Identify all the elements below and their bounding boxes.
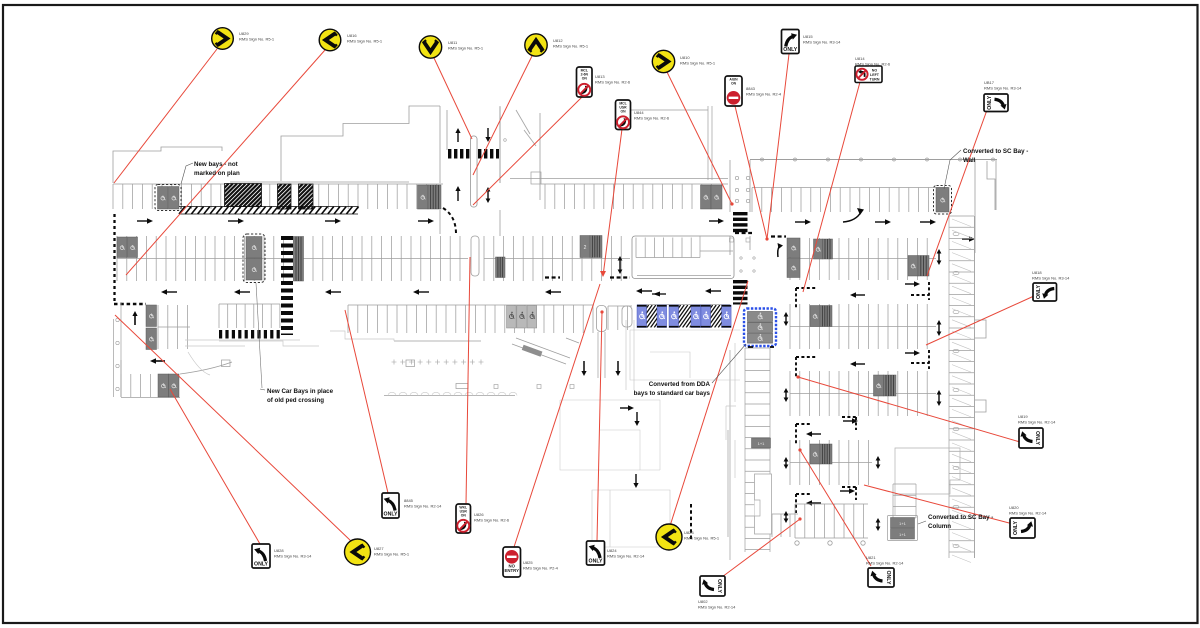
svg-text:U814: U814: [855, 56, 865, 61]
svg-text:RMS Sign No. R3-14: RMS Sign No. R3-14: [984, 85, 1022, 90]
svg-text:U816: U816: [347, 33, 357, 38]
svg-text:U826: U826: [474, 512, 484, 517]
svg-text:8845: 8845: [404, 498, 414, 503]
svg-text:U824: U824: [607, 548, 617, 553]
svg-text:2: 2: [584, 245, 587, 251]
svg-text:U813: U813: [595, 74, 605, 79]
svg-text:marked on plan: marked on plan: [194, 170, 240, 177]
svg-text:1+1: 1+1: [899, 521, 907, 526]
svg-text:ON: ON: [620, 109, 626, 113]
svg-text:U829: U829: [239, 31, 249, 36]
svg-text:ON: ON: [582, 76, 588, 80]
svg-text:bays to standard car bays: bays to standard car bays: [634, 390, 711, 397]
svg-text:RMS Sign No. R2-6: RMS Sign No. R2-6: [855, 61, 891, 66]
svg-text:U821: U821: [866, 555, 876, 560]
svg-text:RMS Sign No. R5-1: RMS Sign No. R5-1: [684, 535, 720, 540]
svg-text:1+1: 1+1: [899, 532, 907, 537]
svg-text:RMS Sign No. R3-14: RMS Sign No. R3-14: [1032, 275, 1070, 280]
svg-text:Converted to SC Bay -: Converted to SC Bay -: [928, 514, 993, 521]
svg-text:ONLY: ONLY: [716, 579, 722, 593]
svg-text:RMS Sign No. R2-14: RMS Sign No. R2-14: [607, 553, 645, 558]
svg-text:U827: U827: [374, 546, 384, 551]
svg-text:of old ped crossing: of old ped crossing: [267, 397, 324, 404]
svg-text:U811: U811: [448, 40, 458, 45]
svg-text:RMS Sign No. R5-1: RMS Sign No. R5-1: [374, 551, 410, 556]
svg-text:RMS Sign No. R3-14: RMS Sign No. R3-14: [803, 39, 841, 44]
svg-text:ONLY: ONLY: [885, 571, 891, 585]
svg-text:Wall: Wall: [963, 157, 976, 164]
svg-text:UB17: UB17: [984, 80, 995, 85]
svg-text:ONLY: ONLY: [1036, 284, 1042, 298]
svg-text:RMS Sign No. R2-14: RMS Sign No. R2-14: [1009, 510, 1047, 515]
svg-text:ONLY: ONLY: [254, 561, 268, 567]
svg-text:RMS Sign No. R5-1: RMS Sign No. R5-1: [347, 38, 383, 43]
svg-text:U828: U828: [274, 548, 284, 553]
svg-text:Converted from DDA: Converted from DDA: [649, 381, 711, 388]
svg-text:RMS Sign No. R2-14: RMS Sign No. R2-14: [1018, 419, 1056, 424]
svg-text:ONLY: ONLY: [783, 47, 797, 53]
svg-text:U820: U820: [1009, 505, 1019, 510]
svg-text:U823: U823: [684, 530, 694, 535]
svg-text:U815: U815: [803, 34, 813, 39]
svg-text:U819: U819: [1018, 414, 1028, 419]
svg-text:LEFT: LEFT: [870, 73, 880, 77]
svg-text:New Car Bays in place: New Car Bays in place: [267, 388, 334, 395]
svg-text:8843: 8843: [746, 86, 756, 91]
svg-text:ENTRY: ENTRY: [505, 568, 520, 573]
svg-text:New bays - not: New bays - not: [194, 161, 238, 168]
svg-text:RMS Sign No. R2-14: RMS Sign No. R2-14: [404, 503, 442, 508]
svg-text:U825: U825: [523, 560, 533, 565]
svg-text:RMS Sign No. R2-14: RMS Sign No. R2-14: [866, 560, 904, 565]
svg-text:RMS Sign No. R5-1: RMS Sign No. R5-1: [553, 43, 589, 48]
svg-text:ONLY: ONLY: [1034, 431, 1040, 445]
svg-text:RMS Sign No. R2-6: RMS Sign No. R2-6: [595, 79, 631, 84]
svg-text:U844: U844: [634, 110, 644, 115]
svg-text:RMS Sign No. R5-1: RMS Sign No. R5-1: [239, 36, 275, 41]
svg-text:U818: U818: [1032, 270, 1042, 275]
svg-text:U812: U812: [553, 38, 563, 43]
svg-text:RMS Sign No. R2-4: RMS Sign No. R2-4: [746, 91, 782, 96]
svg-text:RMS Sign No. R5-1: RMS Sign No. R5-1: [448, 45, 484, 50]
svg-text:ONLY: ONLY: [589, 558, 603, 564]
svg-text:NO: NO: [872, 69, 878, 73]
svg-text:1+1: 1+1: [758, 441, 766, 446]
svg-text:ONLY: ONLY: [987, 95, 993, 109]
svg-text:Column: Column: [928, 523, 951, 530]
svg-text:ON: ON: [461, 513, 467, 517]
svg-text:RMS Sign No. R2-6: RMS Sign No. R2-6: [634, 115, 670, 120]
svg-text:ON: ON: [731, 82, 737, 86]
svg-text:ONLY: ONLY: [1013, 520, 1019, 534]
svg-text:RMS Sign No. R3-14: RMS Sign No. R3-14: [274, 553, 312, 558]
svg-text:U810: U810: [680, 55, 690, 60]
svg-text:ONLY: ONLY: [384, 511, 398, 517]
svg-text:RMS Sign No. R2-14: RMS Sign No. R2-14: [698, 604, 736, 609]
svg-text:RMS Sign No. R5-1: RMS Sign No. R5-1: [680, 60, 716, 65]
svg-text:TURN: TURN: [870, 77, 880, 81]
svg-text:Converted to SC Bay -: Converted to SC Bay -: [963, 148, 1028, 155]
svg-text:RMS Sign No. R2-6: RMS Sign No. R2-6: [474, 517, 510, 522]
svg-text:U802: U802: [698, 599, 708, 604]
svg-text:RMS Sign No. P2-4: RMS Sign No. P2-4: [523, 565, 559, 570]
